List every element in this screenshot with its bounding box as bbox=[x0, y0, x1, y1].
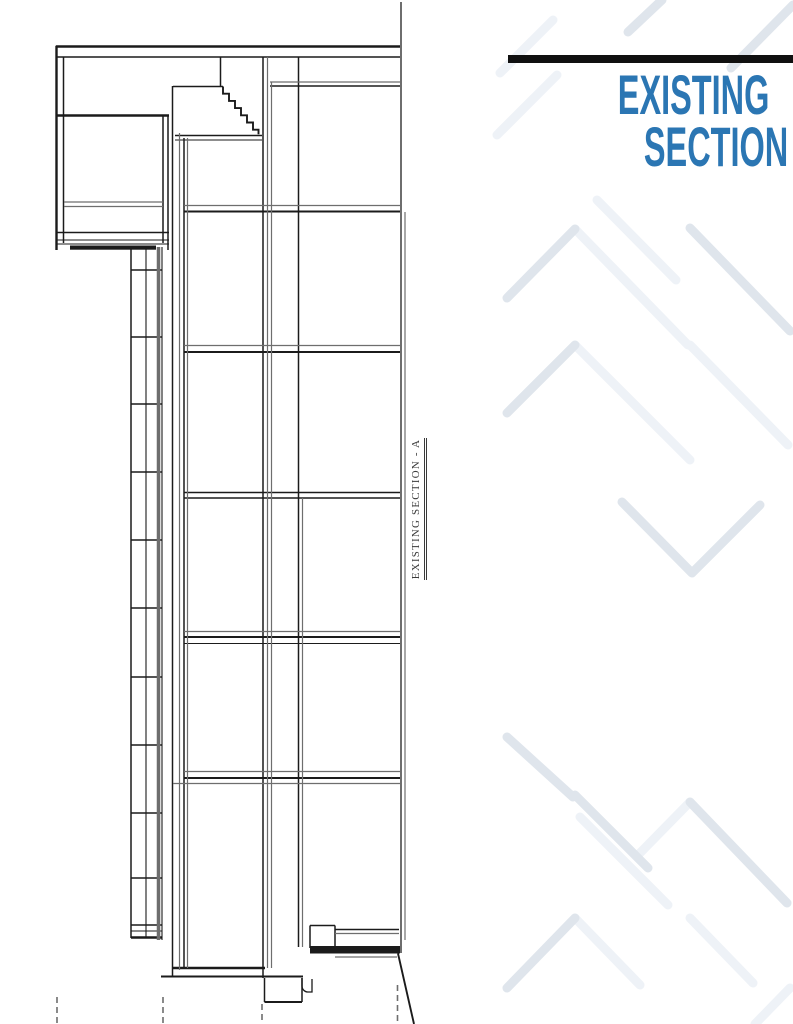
title-block: EXISTING SECTION -A bbox=[508, 55, 793, 173]
drawing-caption-vertical: EXISTING SECTION - A bbox=[410, 438, 427, 580]
title-rule bbox=[508, 55, 793, 63]
parapet-dark-bar bbox=[70, 246, 156, 250]
document-page: EXISTING SECTION - A EXISTING SECTION -A bbox=[0, 0, 793, 1024]
page-title: EXISTING SECTION -A bbox=[508, 69, 793, 173]
drawing-caption-text: EXISTING SECTION - A bbox=[410, 439, 422, 579]
projection-dashed-lines bbox=[57, 985, 398, 1024]
title-line1: EXISTING bbox=[618, 69, 770, 121]
base-dark-band bbox=[310, 946, 400, 954]
title-line2: SECTION -A bbox=[644, 121, 793, 173]
section-drawing-lines bbox=[56, 2, 414, 1024]
